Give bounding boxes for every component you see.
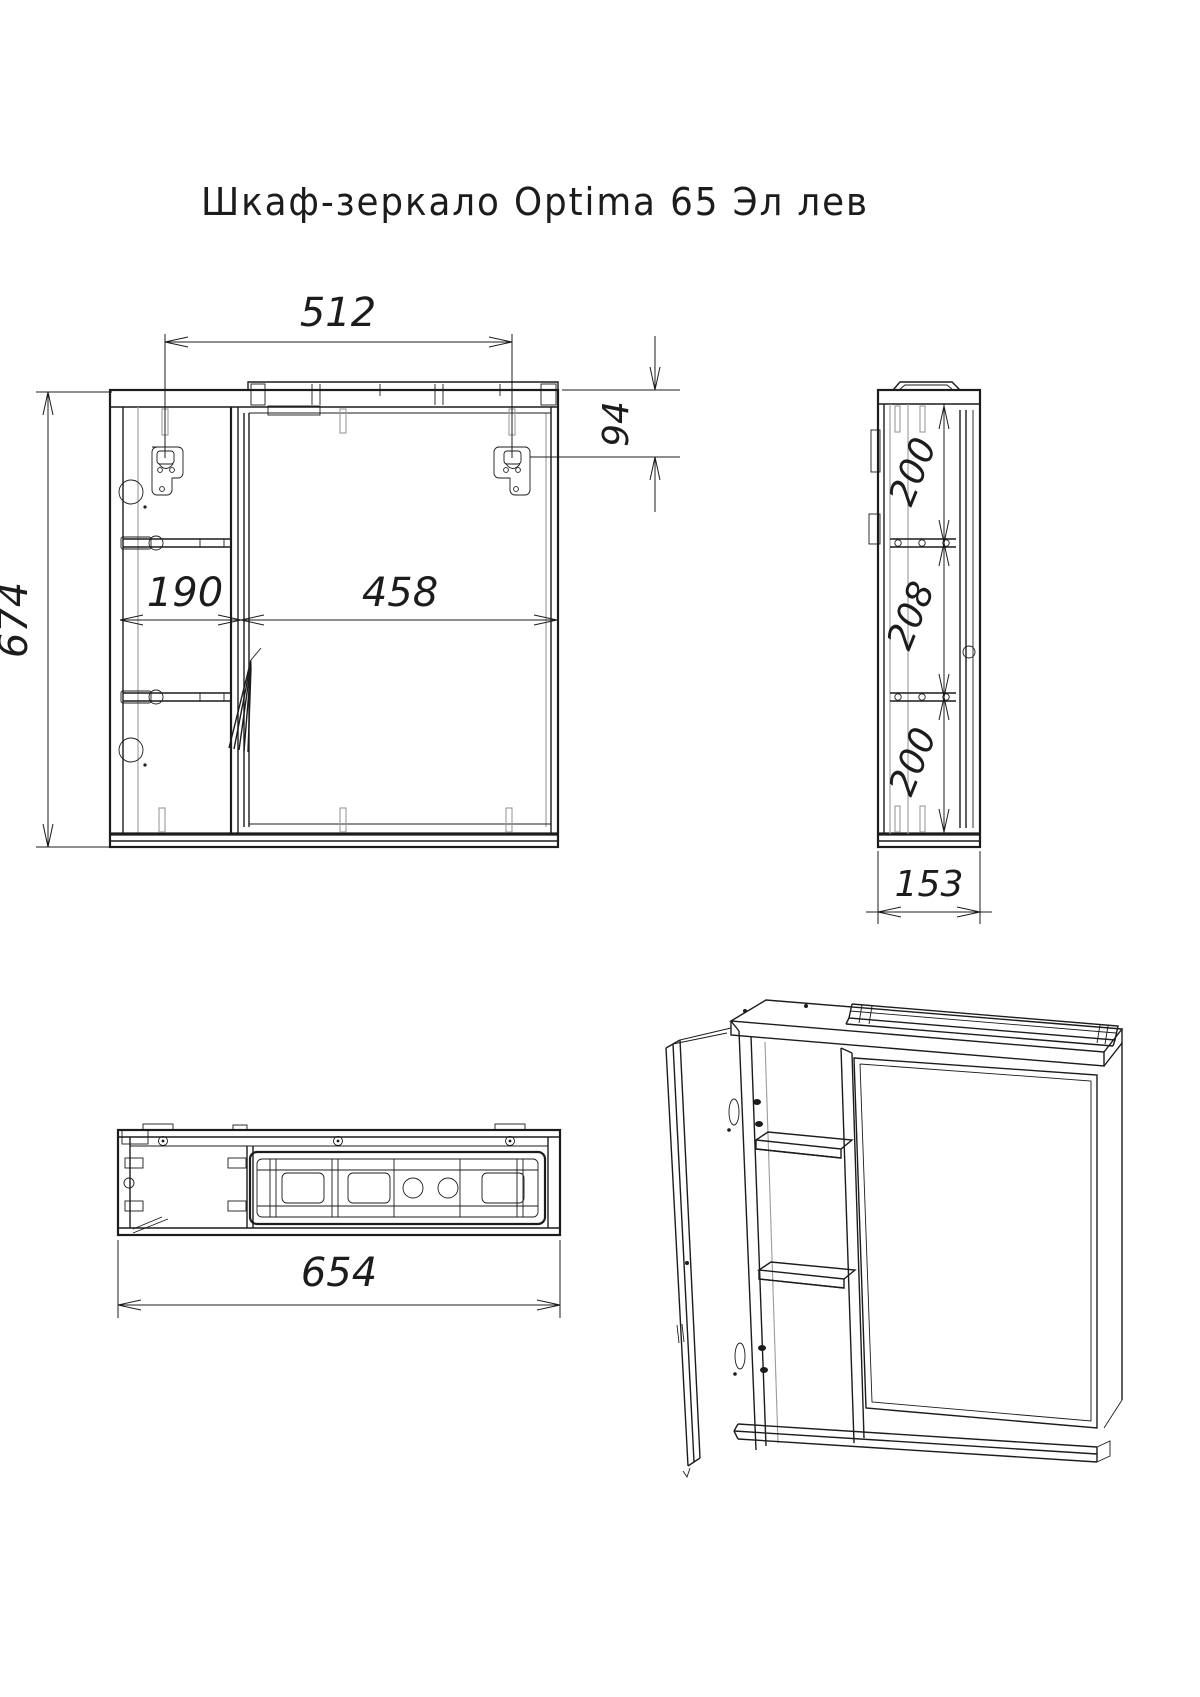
dimension-width: 654 [118,1240,560,1318]
dimension-height: 674 [0,392,112,847]
screw-marks [159,1137,515,1146]
shelf-side-lower [890,693,956,701]
dimension-sections: 190 458 [120,570,557,625]
dim-512-label: 512 [300,290,376,336]
shelf-3d-lower [759,1262,855,1288]
bottom-view: 654 [118,1124,560,1318]
dim-153-label: 153 [895,864,964,905]
dimension-hanger-offset: 94 [530,336,680,512]
side-light-cap [893,382,960,390]
top-board [731,1000,1122,1052]
side-view: 200 208 200 153 [866,382,992,924]
shelf-3d-upper [756,1132,852,1158]
technical-drawing: Шкаф-зеркало Optima 65 Эл лев [0,0,1200,1697]
dowel-pin [340,808,346,832]
front-carcass-outline [110,390,558,847]
dim-200-top-label: 200 [881,432,945,511]
mirror-door [854,1058,1097,1428]
bottom-board-3d [734,1424,1110,1462]
open-door [666,1028,731,1477]
dim-674-label: 674 [0,582,37,658]
shelf-side-upper [890,539,956,547]
light-fixture [250,1152,545,1224]
drawing-title: Шкаф-зеркало Optima 65 Эл лев [201,180,869,224]
dimension-hanger-span: 512 [165,290,512,458]
dim-200-bottom-label: 200 [881,722,945,801]
dim-208-label: 208 [879,576,943,655]
dowel-pin [506,808,512,832]
dim-654-label: 654 [301,1250,377,1296]
dim-94-label: 94 [596,401,637,447]
dim-190-label: 190 [147,570,223,616]
dim-458-label: 458 [362,570,438,616]
dimension-depth: 153 [866,851,992,924]
dowel-pin [159,808,165,832]
technical-drawing-page: Шкаф-зеркало Optima 65 Эл лев [0,0,1200,1697]
perspective-view [666,1000,1122,1477]
front-view: 512 94 190 458 674 [0,290,680,847]
door-section-hatch [229,648,261,752]
